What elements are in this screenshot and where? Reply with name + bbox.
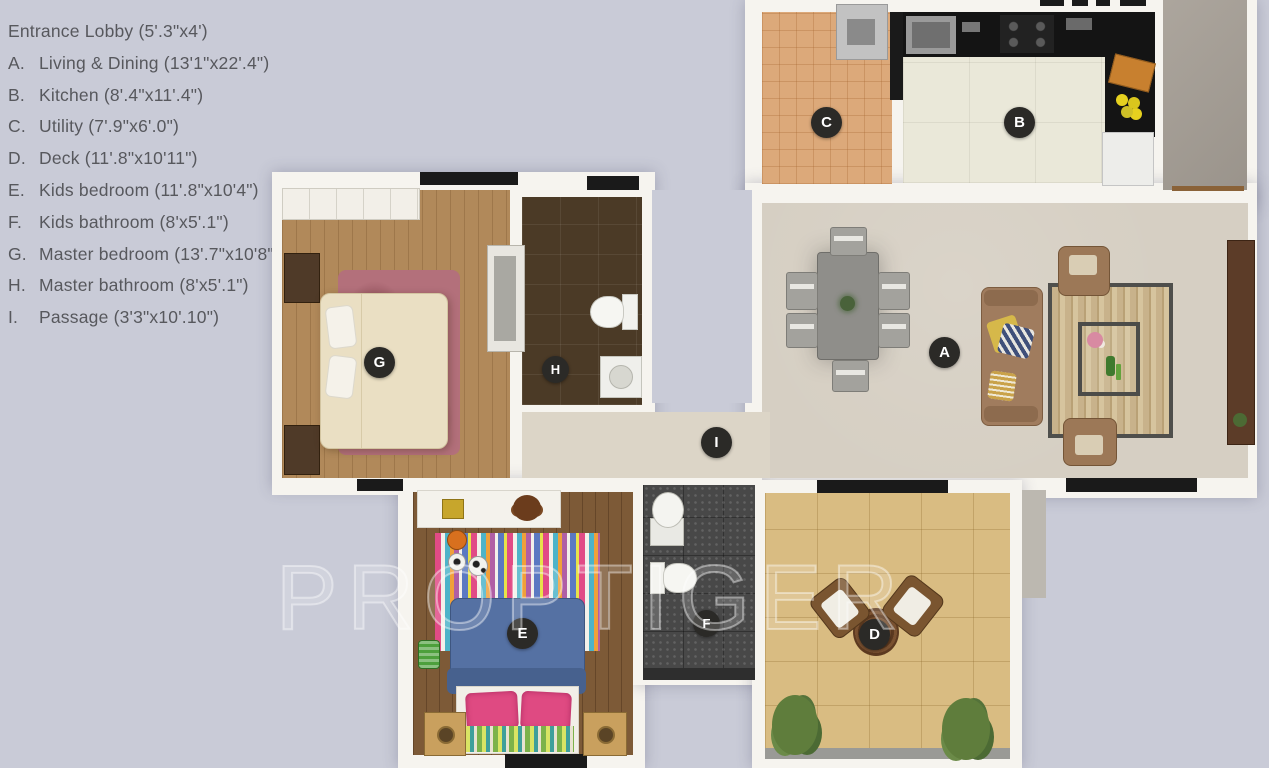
toilet-master: [590, 292, 638, 330]
marker-master-bedroom: G: [364, 347, 395, 378]
kitchen-top-window: [1120, 0, 1146, 6]
kids-bottle: [418, 640, 440, 669]
sofa-armrest: [984, 290, 1038, 306]
legend-letter: G.: [8, 239, 39, 271]
toilet-bowl: [663, 563, 697, 593]
wardrobe: [282, 188, 420, 220]
legend-letter: D.: [8, 143, 39, 175]
kitchen-sink: [906, 16, 956, 54]
legend-letter: I.: [8, 302, 39, 334]
kitchen-top-window: [1040, 0, 1064, 6]
kids-shelf: [417, 490, 561, 528]
tv-cabinet: [1227, 240, 1255, 445]
armchair-cushion: [1069, 255, 1097, 275]
kids-bedroom-door: [505, 754, 587, 768]
toilet-tank: [622, 294, 638, 330]
legend-letter: H.: [8, 270, 39, 302]
nightstand: [284, 425, 320, 475]
washing-machine: [836, 4, 888, 60]
legend-item-b: B.Kitchen (8'.4"x11'.4"): [8, 80, 288, 112]
chair-cushion: [820, 588, 860, 629]
marker-passage: I: [701, 427, 732, 458]
master-bathroom-window: [587, 176, 639, 190]
bed-blanket-fold: [361, 294, 362, 448]
legend-text: Kids bedroom (11'.8"x10'4"): [39, 175, 259, 207]
room-passage: [522, 412, 770, 478]
blue-pillow: [997, 323, 1035, 360]
dining-chair: [878, 272, 910, 310]
gold-pillow: [987, 370, 1017, 401]
legend-text: Utility (7'.9"x6'.0"): [39, 111, 179, 143]
fridge: [1102, 132, 1154, 186]
kids-bed-foot-blanket: [461, 726, 574, 752]
legend-letter: B.: [8, 80, 39, 112]
table-centerpiece-plant: [840, 296, 855, 311]
kitchen-top-window: [1096, 0, 1110, 6]
nightstand: [284, 253, 320, 303]
armchair: [1063, 418, 1117, 466]
marker-kitchen: B: [1004, 107, 1035, 138]
legend-item-d: D.Deck (11'.8"x10'11"): [8, 143, 288, 175]
deck-plant: [942, 698, 990, 760]
dresser-front: [494, 256, 516, 341]
legend-item-a: A.Living & Dining (13'1"x22'.4"): [8, 48, 288, 80]
football: [448, 553, 466, 571]
legend-item-h: H.Master bathroom (8'x5'.1"): [8, 270, 288, 302]
chair-cushion: [892, 586, 932, 627]
legend-text: Passage (3'3"x10'.10"): [39, 302, 219, 334]
master-bedroom-window: [420, 172, 518, 185]
marker-kids-bathroom: F: [693, 610, 720, 637]
sink-bowl: [609, 365, 633, 389]
kids-bathroom-base: [643, 668, 755, 680]
shelf-trinket: [442, 499, 464, 519]
kitchen-top-window: [1072, 0, 1088, 6]
coffee-table: [1078, 322, 1140, 396]
counter-item: [1066, 18, 1092, 30]
armchair-cushion: [1075, 435, 1103, 455]
dining-chair: [830, 227, 867, 256]
legend-letter: F.: [8, 207, 39, 239]
legend-item-c: C.Utility (7'.9"x6'.0"): [8, 111, 288, 143]
toilet-kids: [650, 560, 698, 594]
legend-item-i: I.Passage (3'3"x10'.10"): [8, 302, 288, 334]
dresser: [487, 245, 525, 352]
sink-bowl: [652, 492, 684, 528]
deck-sliding-door: [817, 480, 948, 493]
sink-basin: [912, 22, 950, 48]
cabinet-plant: [1233, 413, 1247, 427]
sink-master: [600, 356, 642, 398]
legend-text: Deck (11'.8"x10'11"): [39, 143, 198, 175]
marker-kids-bedroom: E: [507, 618, 538, 649]
legend-letter: A.: [8, 48, 39, 80]
legend-item-e: E.Kids bedroom (11'.8"x10'4"): [8, 175, 288, 207]
deck-side-ledge: [1022, 490, 1046, 598]
washing-machine-drum: [847, 19, 875, 45]
basketball: [447, 530, 467, 550]
dining-chair: [786, 272, 818, 310]
entrance-lobby-area: [1163, 0, 1247, 190]
legend-item-g: G.Master bedroom (13'.7"x10'8"): [8, 239, 288, 271]
marker-deck: D: [859, 619, 890, 650]
sofa-armrest: [984, 406, 1038, 422]
bedroom-bottom-window: [357, 479, 403, 491]
legend-text: Living & Dining (13'1"x22'.4"): [39, 48, 269, 80]
nightstand-knob: [597, 726, 615, 744]
teddy-bear: [513, 495, 541, 521]
floor-plan-image: Entrance Lobby (5'.3"x4') A.Living & Din…: [0, 0, 1269, 768]
legend-item-f: F.Kids bathroom (8'x5'.1"): [8, 207, 288, 239]
dining-chair: [878, 313, 910, 348]
legend-entrance-lobby: Entrance Lobby (5'.3"x4'): [8, 16, 288, 48]
legend-text: Kitchen (8'.4"x11'.4"): [39, 80, 203, 112]
entrance-door: [1172, 186, 1244, 191]
marker-living-dining: A: [929, 337, 960, 368]
deck-plant: [772, 695, 818, 755]
sofa: [981, 287, 1043, 426]
nightstand-knob: [437, 726, 455, 744]
legend-text: Master bathroom (8'x5'.1"): [39, 270, 249, 302]
legend: Entrance Lobby (5'.3"x4') A.Living & Din…: [8, 16, 288, 334]
flower-vase: [1087, 332, 1103, 348]
green-bottle: [1106, 356, 1115, 376]
marker-master-bathroom: H: [542, 356, 569, 383]
sink-kids: [648, 492, 686, 546]
fruit-bowl: [1116, 94, 1128, 106]
armchair: [1058, 246, 1110, 296]
kids-nightstand: [583, 712, 627, 756]
dining-chair: [786, 313, 818, 348]
living-bottom-window: [1066, 478, 1197, 492]
bed-pillow: [325, 354, 358, 399]
football: [468, 556, 488, 576]
legend-text: Master bedroom (13'.7"x10'8"): [39, 239, 280, 271]
marker-utility: C: [811, 107, 842, 138]
stove: [1000, 15, 1054, 53]
open-shaft: [652, 190, 752, 403]
kids-nightstand: [424, 712, 466, 756]
toilet-bowl: [590, 296, 624, 328]
legend-letter: E.: [8, 175, 39, 207]
legend-letter: C.: [8, 111, 39, 143]
legend-entrance-text: Entrance Lobby (5'.3"x4'): [8, 16, 208, 48]
counter-item: [962, 22, 980, 32]
bed-pillow: [325, 304, 358, 349]
dining-chair: [832, 360, 869, 392]
legend-text: Kids bathroom (8'x5'.1"): [39, 207, 229, 239]
utility-kitchen-partition: [890, 12, 903, 100]
